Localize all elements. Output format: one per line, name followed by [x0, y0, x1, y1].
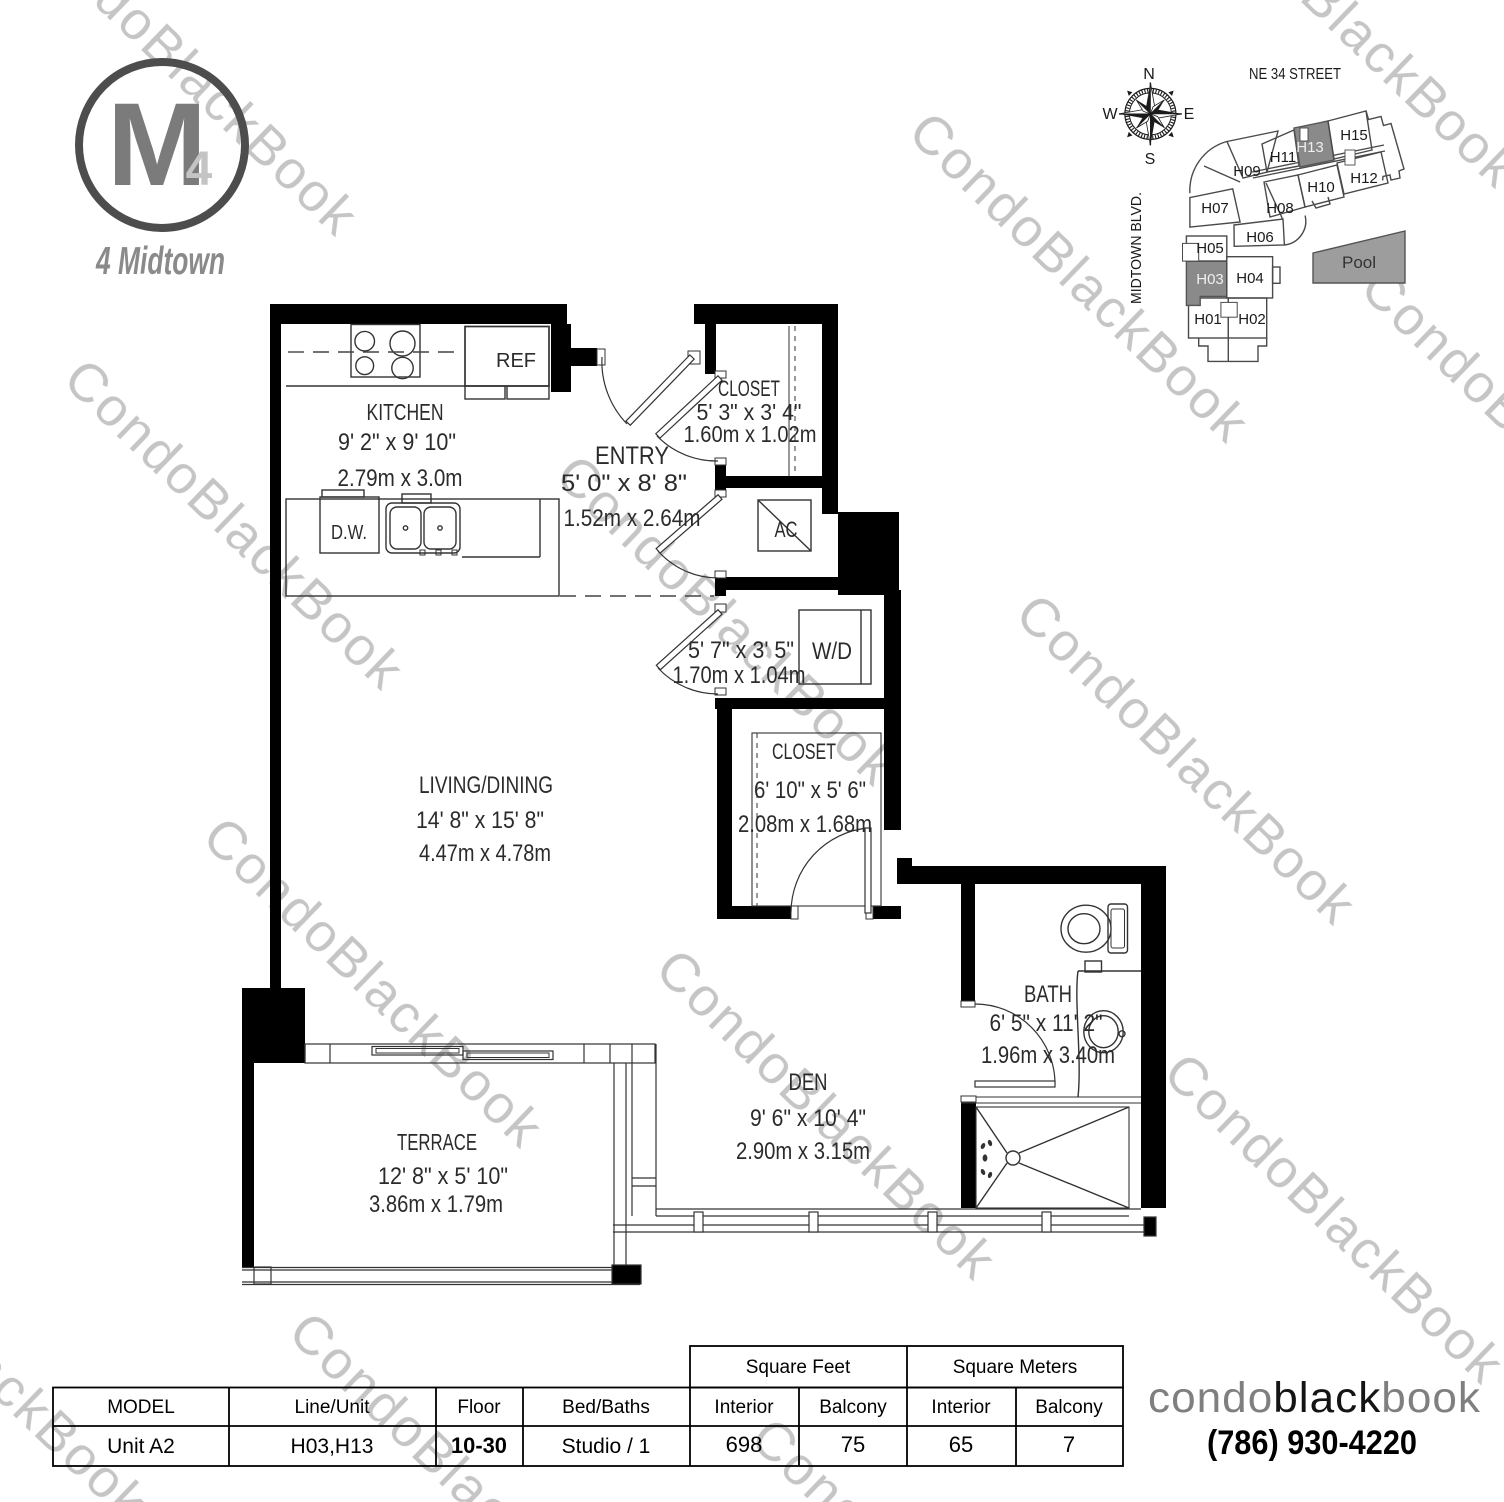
svg-text:65: 65: [949, 1432, 973, 1457]
svg-text:6' 5" x 11' 2": 6' 5" x 11' 2": [990, 1010, 1103, 1037]
svg-text:condoblackbook: condoblackbook: [1148, 1374, 1481, 1422]
svg-text:12' 8" x 5' 10": 12' 8" x 5' 10": [378, 1163, 508, 1190]
svg-text:1.60m x 1.02m: 1.60m x 1.02m: [684, 421, 817, 447]
svg-text:NE 34 STREET: NE 34 STREET: [1249, 66, 1341, 83]
svg-text:MODEL: MODEL: [107, 1397, 175, 1418]
svg-text:H04: H04: [1236, 270, 1264, 287]
svg-text:N: N: [1143, 66, 1155, 83]
svg-text:3.86m x 1.79m: 3.86m x 1.79m: [369, 1191, 503, 1218]
svg-text:Square Meters: Square Meters: [953, 1357, 1078, 1378]
svg-text:S: S: [1145, 151, 1156, 168]
svg-text:BATH: BATH: [1024, 981, 1072, 1008]
svg-text:5' 7" x 3' 5": 5' 7" x 3' 5": [688, 637, 794, 664]
svg-text:Floor: Floor: [457, 1397, 501, 1418]
svg-text:H11: H11: [1270, 149, 1296, 166]
svg-text:10-30: 10-30: [451, 1433, 507, 1458]
svg-text:1.52m x 2.64m: 1.52m x 2.64m: [564, 505, 701, 532]
svg-text:H10: H10: [1307, 179, 1335, 196]
svg-text:H03,H13: H03,H13: [291, 1435, 374, 1458]
svg-text:5' 0" x 8' 8": 5' 0" x 8' 8": [561, 470, 687, 497]
svg-text:4.47m x 4.78m: 4.47m x 4.78m: [419, 840, 551, 867]
svg-text:7: 7: [1063, 1432, 1075, 1457]
svg-text:ENTRY: ENTRY: [595, 442, 669, 470]
svg-text:CondoBlackBook: CondoBlackBook: [740, 1407, 1104, 1502]
svg-text:H07: H07: [1201, 200, 1229, 217]
svg-text:REF: REF: [496, 350, 536, 372]
svg-text:Interior: Interior: [714, 1397, 774, 1418]
svg-text:Interior: Interior: [931, 1397, 991, 1418]
svg-text:75: 75: [841, 1432, 865, 1457]
svg-text:H05: H05: [1196, 240, 1224, 257]
svg-text:14' 8" x 15' 8": 14' 8" x 15' 8": [416, 807, 544, 834]
svg-text:Pool: Pool: [1342, 253, 1376, 272]
svg-text:E: E: [1184, 106, 1195, 123]
svg-text:1.96m x 3.40m: 1.96m x 3.40m: [981, 1042, 1115, 1069]
svg-text:H03: H03: [1196, 271, 1224, 288]
svg-text:MIDTOWN BLVD.: MIDTOWN BLVD.: [1128, 192, 1145, 304]
svg-text:CondoBlackBook: CondoBlackBook: [1167, 0, 1504, 200]
svg-text:W: W: [1102, 106, 1118, 123]
svg-text:Studio / 1: Studio / 1: [562, 1435, 651, 1458]
svg-text:2.90m x 3.15m: 2.90m x 3.15m: [736, 1138, 870, 1165]
svg-text:CLOSET: CLOSET: [772, 739, 836, 764]
svg-text:2.08m x 1.68m: 2.08m x 1.68m: [738, 811, 872, 838]
svg-text:CondoBlackBook: CondoBlackBook: [1350, 257, 1504, 611]
svg-text:6' 10" x 5' 6": 6' 10" x 5' 6": [754, 777, 866, 804]
svg-text:TERRACE: TERRACE: [397, 1129, 477, 1155]
svg-text:DEN: DEN: [789, 1069, 828, 1096]
svg-text:H13: H13: [1296, 139, 1324, 156]
svg-text:H08: H08: [1266, 200, 1294, 217]
svg-text:2.79m x 3.0m: 2.79m x 3.0m: [338, 465, 463, 492]
svg-text:9' 2" x 9' 10": 9' 2" x 9' 10": [338, 429, 456, 456]
svg-text:1.70m x 1.04m: 1.70m x 1.04m: [673, 662, 806, 689]
svg-text:Bed/Baths: Bed/Baths: [562, 1397, 650, 1418]
svg-text:698: 698: [726, 1432, 763, 1457]
svg-text:4: 4: [186, 143, 213, 196]
svg-text:4 Midtown: 4 Midtown: [95, 240, 225, 283]
svg-text:LIVING/DINING: LIVING/DINING: [419, 772, 553, 799]
svg-text:Square Feet: Square Feet: [746, 1357, 851, 1378]
svg-text:H06: H06: [1246, 229, 1274, 246]
svg-text:Balcony: Balcony: [819, 1397, 887, 1418]
svg-text:CLOSET: CLOSET: [718, 376, 780, 401]
svg-text:Balcony: Balcony: [1035, 1397, 1103, 1418]
svg-text:9' 6" x 10' 4": 9' 6" x 10' 4": [750, 1105, 866, 1132]
svg-text:Unit A2: Unit A2: [107, 1435, 175, 1458]
svg-text:W/D: W/D: [812, 638, 852, 665]
svg-text:(786) 930-4220: (786) 930-4220: [1207, 1424, 1417, 1462]
svg-text:H12: H12: [1350, 170, 1378, 187]
svg-text:D.W.: D.W.: [331, 522, 367, 544]
svg-text:H09: H09: [1233, 163, 1261, 180]
svg-text:H01: H01: [1194, 311, 1222, 328]
svg-text:AC: AC: [775, 517, 798, 542]
svg-text:H15: H15: [1340, 127, 1368, 144]
svg-text:KITCHEN: KITCHEN: [367, 399, 444, 425]
svg-text:H02: H02: [1238, 311, 1266, 328]
svg-text:Line/Unit: Line/Unit: [295, 1397, 371, 1418]
svg-text:CondoBlackBook: CondoBlackBook: [1153, 1042, 1504, 1396]
